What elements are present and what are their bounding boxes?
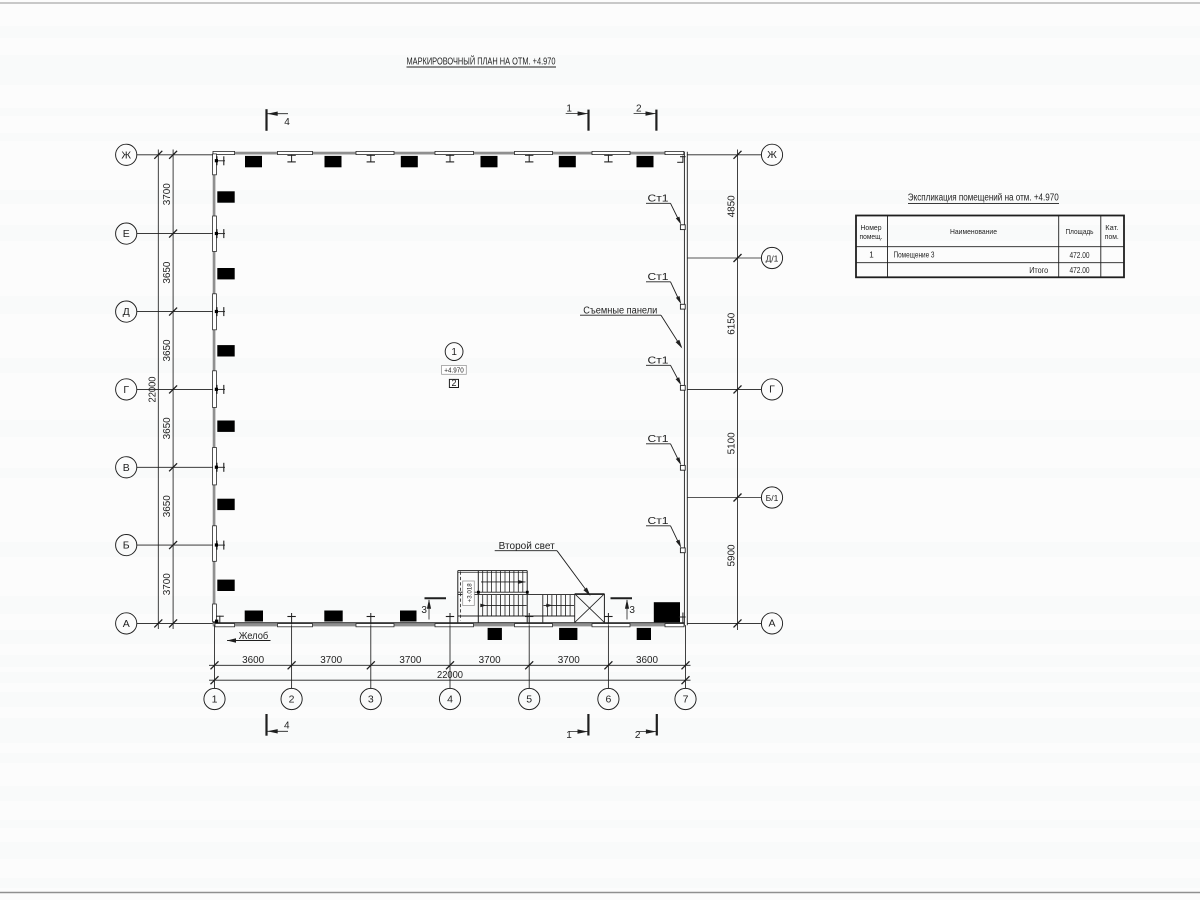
svg-text:Итого: Итого [1029,266,1048,275]
svg-text:Г: Г [769,384,775,396]
svg-text:4: 4 [447,694,453,706]
svg-text:3650: 3650 [162,339,173,361]
svg-text:4: 4 [284,721,290,732]
svg-text:В: В [123,462,130,474]
svg-text:3700: 3700 [320,655,342,666]
svg-text:5100: 5100 [726,432,737,454]
svg-text:+3.018: +3.018 [466,583,473,603]
svg-text:5900: 5900 [726,544,737,566]
svg-text:1: 1 [869,251,874,260]
svg-text:2: 2 [635,730,641,741]
svg-text:А: А [123,618,130,630]
svg-text:3600: 3600 [242,655,264,666]
svg-text:Д: Д [123,306,130,318]
svg-text:Б: Б [123,540,130,552]
svg-text:3700: 3700 [479,655,501,666]
svg-text:7: 7 [683,694,689,706]
svg-text:22000: 22000 [437,670,463,681]
svg-text:помещ.: помещ. [860,232,883,241]
svg-text:2: 2 [451,378,456,388]
svg-text:А: А [768,618,775,630]
svg-text:3650: 3650 [162,261,173,283]
svg-text:472.00: 472.00 [1070,251,1090,260]
svg-text:Помещение 3: Помещение 3 [894,251,935,260]
svg-text:3700: 3700 [399,655,421,666]
svg-text:Г: Г [123,384,129,396]
svg-text:6150: 6150 [726,312,737,334]
svg-text:Площадь: Площадь [1066,227,1094,236]
svg-text:2: 2 [289,694,295,706]
svg-text:6: 6 [605,694,611,706]
svg-text:22000: 22000 [147,376,158,402]
svg-text:пом.: пом. [1105,232,1119,241]
svg-text:МАРКИРОВОЧНЫЙ ПЛАН НА ОТМ. +4.: МАРКИРОВОЧНЫЙ ПЛАН НА ОТМ. +4.970 [407,55,556,68]
svg-text:3700: 3700 [162,573,173,595]
svg-text:3: 3 [629,605,635,616]
svg-text:1: 1 [566,104,572,115]
svg-text:3650: 3650 [162,495,173,517]
svg-text:Ж: Ж [767,149,777,161]
svg-text:Б/1: Б/1 [766,493,779,503]
svg-text:+4.970: +4.970 [444,367,464,374]
svg-text:Е: Е [123,228,130,240]
svg-text:3600: 3600 [636,655,658,666]
svg-text:Ж: Ж [121,149,131,161]
svg-text:Д/1: Д/1 [766,253,779,263]
svg-text:1: 1 [451,347,457,358]
svg-text:2: 2 [636,104,642,115]
svg-text:Наименование: Наименование [950,227,997,236]
svg-text:1: 1 [566,730,572,741]
svg-text:Съемные панели: Съемные панели [583,305,657,316]
svg-text:4850: 4850 [726,195,737,217]
svg-text:5: 5 [526,694,532,706]
svg-text:3: 3 [421,605,427,616]
svg-text:3650: 3650 [162,417,173,439]
svg-text:Экспликация помещений на отм.: Экспликация помещений на отм. +4.970 [908,193,1059,204]
svg-text:Кат.: Кат. [1105,223,1118,232]
svg-text:3: 3 [368,694,374,706]
svg-text:Номер: Номер [861,223,882,232]
svg-text:472.00: 472.00 [1070,266,1090,275]
svg-text:1: 1 [212,694,218,706]
svg-text:3700: 3700 [558,655,580,666]
svg-text:4: 4 [284,117,290,128]
svg-text:3700: 3700 [162,183,173,205]
